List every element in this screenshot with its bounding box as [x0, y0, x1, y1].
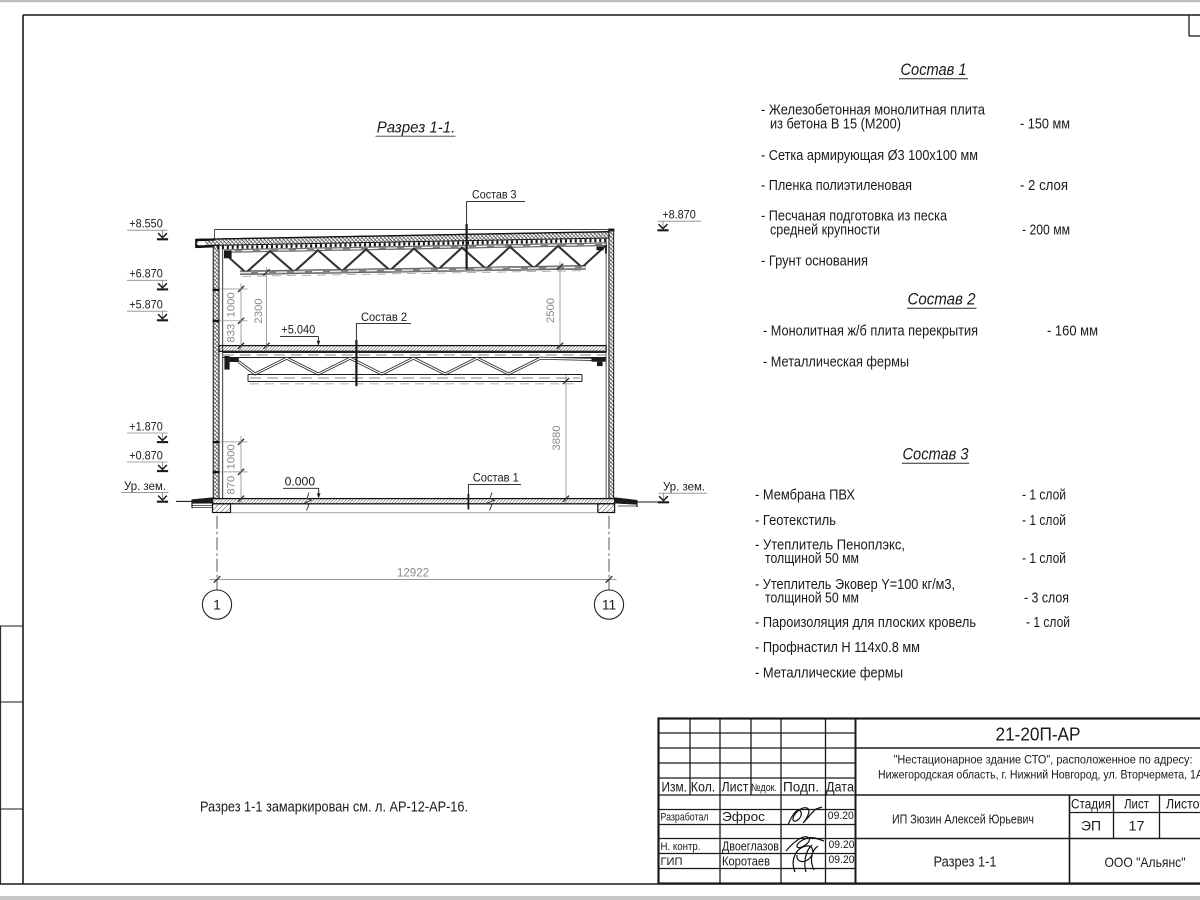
svg-text:- 160 мм: - 160 мм: [1047, 324, 1098, 340]
svg-text:09.20: 09.20: [829, 854, 855, 866]
svg-text:833: 833: [226, 324, 238, 343]
svg-text:ИП Зюзин Алексей Юрьевич: ИП Зюзин Алексей Юрьевич: [892, 812, 1034, 827]
svg-text:- Металлические фермы: - Металлические фермы: [755, 666, 903, 682]
svg-text:Состав 1: Состав 1: [901, 61, 967, 79]
svg-text:- 3 слоя: - 3 слоя: [1024, 591, 1069, 607]
svg-text:09.20: 09.20: [828, 810, 854, 822]
svg-text:17: 17: [1129, 819, 1145, 835]
svg-text:толщиной 50 мм: толщиной 50 мм: [765, 591, 859, 607]
svg-text:- Металлическая фермы: - Металлическая фермы: [763, 355, 909, 371]
svg-text:№док.: №док.: [751, 782, 777, 794]
svg-text:- Профнастил Н 114х0.8 мм: - Профнастил Н 114х0.8 мм: [755, 640, 920, 656]
svg-text:толщиной 50 мм: толщиной 50 мм: [765, 551, 859, 567]
svg-text:Листов: Листов: [1166, 797, 1200, 812]
svg-text:Разрез 1-1 замаркирован см. л.: Разрез 1-1 замаркирован см. л. АР-12-АР-…: [200, 800, 468, 816]
svg-text:"Нестационарное здание СТО", р: "Нестационарное здание СТО", расположенн…: [894, 753, 1193, 767]
svg-text:Состав 2: Состав 2: [361, 310, 407, 324]
svg-text:- Пароизоляция для плоских кро: - Пароизоляция для плоских кровель: [755, 615, 976, 631]
svg-text:- Монолитная ж/б плита перекры: - Монолитная ж/б плита перекрытия: [763, 324, 978, 340]
svg-text:21-20П-АР: 21-20П-АР: [996, 724, 1081, 745]
svg-text:Состав 2: Состав 2: [908, 291, 976, 309]
svg-text:Коротаев: Коротаев: [722, 854, 770, 869]
svg-text:- 200 мм: - 200 мм: [1022, 223, 1070, 239]
svg-text:Эфрос: Эфрос: [722, 809, 766, 824]
svg-text:Ур. зем.: Ур. зем.: [124, 479, 166, 493]
svg-text:1: 1: [213, 598, 221, 613]
svg-text:- 1 слой: - 1 слой: [1022, 488, 1066, 504]
svg-text:Состав 1: Состав 1: [473, 471, 519, 485]
svg-text:2300: 2300: [253, 298, 265, 323]
svg-text:+5.870: +5.870: [129, 298, 163, 312]
svg-text:- 2 слоя: - 2 слоя: [1020, 178, 1068, 194]
svg-text:- Геотекстиль: - Геотекстиль: [755, 513, 836, 529]
svg-text:+0.870: +0.870: [129, 448, 163, 462]
svg-text:Подп.: Подп.: [783, 780, 819, 795]
svg-text:12922: 12922: [397, 566, 429, 579]
svg-text:+6.870: +6.870: [129, 267, 163, 281]
svg-text:Стадия: Стадия: [1071, 797, 1111, 812]
svg-text:2500: 2500: [545, 298, 557, 323]
svg-text:- 150 мм: - 150 мм: [1020, 117, 1070, 133]
svg-text:Разрез 1-1: Разрез 1-1: [934, 855, 997, 871]
svg-text:Нижегородская область, г. Нижн: Нижегородская область, г. Нижний Новгоро…: [878, 767, 1200, 781]
svg-text:Состав 3: Состав 3: [903, 446, 969, 464]
svg-text:- Грунт основания: - Грунт основания: [761, 254, 868, 270]
svg-text:ГИП: ГИП: [661, 856, 683, 868]
svg-text:+5.040: +5.040: [281, 323, 315, 337]
svg-text:+1.870: +1.870: [129, 419, 163, 433]
svg-text:Н. контр.: Н. контр.: [661, 841, 701, 853]
svg-text:1000: 1000: [226, 292, 238, 317]
svg-text:- 1 слой: - 1 слой: [1022, 513, 1066, 529]
svg-text:- 1 слой: - 1 слой: [1022, 551, 1066, 567]
svg-text:из бетона В 15 (М200): из бетона В 15 (М200): [770, 117, 901, 133]
svg-text:- 1 слой: - 1 слой: [1026, 615, 1070, 631]
svg-text:Лист: Лист: [722, 780, 749, 795]
svg-text:Дата: Дата: [826, 780, 854, 795]
svg-text:Разрез 1-1.: Разрез 1-1.: [377, 120, 456, 137]
svg-text:870: 870: [226, 476, 238, 495]
svg-text:Изм.: Изм.: [661, 780, 687, 795]
svg-text:- Мембрана ПВХ: - Мембрана ПВХ: [755, 488, 855, 504]
svg-text:Лист: Лист: [1124, 797, 1149, 812]
svg-text:+8.550: +8.550: [129, 217, 163, 231]
svg-text:Состав 3: Состав 3: [472, 187, 517, 201]
svg-text:Двоеглазов: Двоеглазов: [722, 839, 779, 854]
svg-text:09.20: 09.20: [829, 839, 855, 851]
svg-text:ООО "Альянс": ООО "Альянс": [1105, 855, 1186, 870]
svg-text:- Пленка полиэтиленовая: - Пленка полиэтиленовая: [761, 178, 912, 194]
svg-text:средней крупности: средней крупности: [770, 223, 880, 239]
svg-text:- Сетка армирующая Ø3 100х100: - Сетка армирующая Ø3 100х100 мм: [761, 148, 978, 164]
svg-text:ЭП: ЭП: [1081, 819, 1101, 835]
svg-text:11: 11: [602, 598, 616, 613]
svg-text:+8.870: +8.870: [662, 208, 696, 222]
svg-text:Кол.: Кол.: [691, 780, 716, 795]
svg-text:Ур. зем.: Ур. зем.: [663, 480, 705, 494]
svg-text:Разработал: Разработал: [661, 812, 709, 824]
svg-text:0.000: 0.000: [285, 475, 316, 489]
svg-text:3880: 3880: [551, 425, 563, 450]
svg-text:1000: 1000: [226, 444, 238, 469]
